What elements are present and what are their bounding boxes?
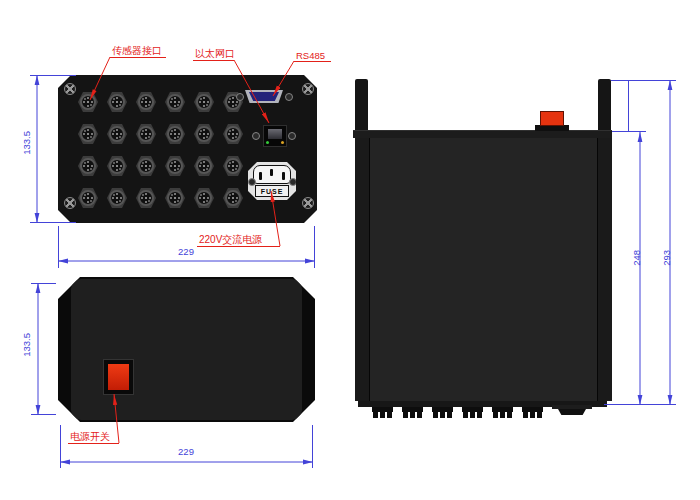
side-view xyxy=(353,79,612,420)
m12-connector xyxy=(223,188,243,208)
dim-side-outer-height: 293 xyxy=(661,250,672,266)
label-sensor-port: 传感器接口 xyxy=(112,45,162,56)
rj45-screw-icon xyxy=(288,132,296,140)
m12-connector xyxy=(136,124,156,144)
m12-connector xyxy=(194,188,214,208)
led-amber xyxy=(281,141,284,144)
m12-connector xyxy=(223,156,243,176)
m12-connector xyxy=(78,188,98,208)
ac-power-inlet: FUSE xyxy=(248,162,296,200)
m12-connector-grid xyxy=(78,92,243,208)
m12-connector xyxy=(165,156,185,176)
red-button xyxy=(540,111,564,126)
bottom-connector-stub xyxy=(372,407,393,418)
label-rs485: RS485 xyxy=(296,50,325,61)
corner-screw-icon xyxy=(64,83,76,95)
m12-connector xyxy=(78,92,98,112)
m12-connector xyxy=(136,156,156,176)
m12-connector xyxy=(136,92,156,112)
m12-connector xyxy=(194,124,214,144)
top-view xyxy=(58,277,315,422)
db9-screw-icon xyxy=(285,93,293,101)
dim-top-height: 133.5 xyxy=(21,333,32,357)
bottom-connector-stub xyxy=(522,407,543,418)
side-body xyxy=(355,138,612,401)
c14-socket xyxy=(253,165,291,184)
rj45-contacts xyxy=(268,129,282,139)
bottom-connector-stub xyxy=(492,407,513,418)
dim-front-width: 229 xyxy=(166,246,206,257)
power-switch xyxy=(103,359,134,395)
corner-screw-icon xyxy=(64,197,76,209)
bottom-connector-stub xyxy=(432,407,453,418)
technical-drawing-canvas: FUSE 传感器接口 以太网口 RS485 220V交流电源 电源开关 133.… xyxy=(0,0,700,500)
rs485-db9-connector xyxy=(245,90,283,103)
m12-connector xyxy=(107,188,127,208)
rj45-screw-icon xyxy=(252,132,260,140)
corner-screw-icon xyxy=(302,83,314,95)
dim-top-width: 229 xyxy=(166,446,206,457)
bottom-connector-stub xyxy=(402,407,423,418)
top-face xyxy=(71,279,302,420)
bottom-connector-stub xyxy=(462,407,483,418)
top-lid xyxy=(353,130,612,138)
m12-connector xyxy=(136,188,156,208)
fuse-drawer: FUSE xyxy=(255,185,289,197)
side-rail-left xyxy=(355,138,370,401)
ethernet-rj45-port xyxy=(263,125,287,147)
front-panel-view: FUSE xyxy=(58,75,317,223)
m12-connector xyxy=(78,124,98,144)
m12-connector xyxy=(107,156,127,176)
inlet-screw-icon xyxy=(289,178,297,186)
led-green xyxy=(266,141,269,144)
corner-screw-icon xyxy=(302,197,314,209)
m12-connector xyxy=(223,124,243,144)
power-switch-rocker xyxy=(108,364,129,390)
m12-connector xyxy=(78,156,98,176)
db9-insert xyxy=(249,92,279,101)
m12-connector xyxy=(165,92,185,112)
m12-connector xyxy=(107,124,127,144)
m12-connector xyxy=(107,92,127,112)
label-ac-power: 220V交流电源 xyxy=(199,234,262,245)
m12-connector xyxy=(194,92,214,112)
m12-connector xyxy=(165,188,185,208)
dim-front-height: 133.5 xyxy=(21,131,32,155)
db9-screw-icon xyxy=(236,93,244,101)
m12-connector xyxy=(194,156,214,176)
label-power-switch: 电源开关 xyxy=(70,431,110,442)
label-ethernet-port: 以太网口 xyxy=(195,48,235,59)
db9-side-profile xyxy=(552,405,592,409)
inlet-screw-icon xyxy=(248,178,256,186)
side-rail-right xyxy=(597,138,612,401)
m12-connector xyxy=(165,124,185,144)
dim-side-inner-height: 248 xyxy=(631,250,642,266)
